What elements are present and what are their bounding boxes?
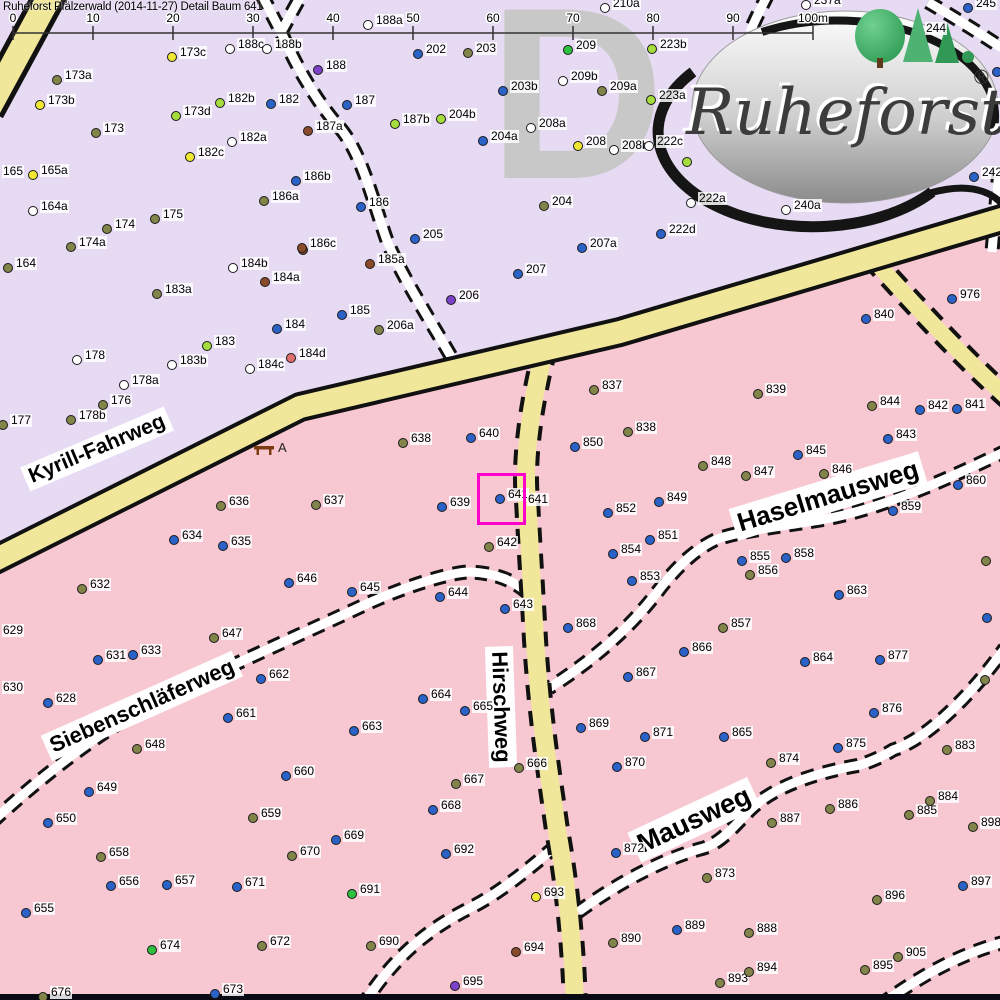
tree-label-667: 667 <box>463 773 485 786</box>
tree-marker-637 <box>311 500 321 510</box>
tree-label-691: 691 <box>359 883 381 896</box>
tree-marker-173 <box>91 128 101 138</box>
tree-marker-657 <box>162 880 172 890</box>
tree-label-173c: 173c <box>179 46 207 59</box>
tree-marker-655 <box>21 908 31 918</box>
tree-label-178b: 178b <box>78 409 107 422</box>
tree-label-187: 187 <box>354 94 376 107</box>
tree-label-188b: 188b <box>274 38 303 51</box>
tree-label-863: 863 <box>846 584 868 597</box>
tree-marker-632 <box>77 584 87 594</box>
tree-label-894: 894 <box>756 961 778 974</box>
tree-label-187b: 187b <box>402 113 431 126</box>
tree-label-223a: 223a <box>658 89 687 102</box>
tree-marker-860 <box>953 480 963 490</box>
tree-marker-633 <box>128 650 138 660</box>
tree-marker <box>981 556 991 566</box>
tree-label-223b: 223b <box>659 38 688 51</box>
tree-label-631: 631 <box>105 649 127 662</box>
tree-label-209b: 209b <box>570 70 599 83</box>
tree-label-206: 206 <box>458 289 480 302</box>
tree-label-646: 646 <box>296 572 318 585</box>
tree-label-864: 864 <box>812 651 834 664</box>
tree-marker-662 <box>256 674 266 684</box>
map-title: Ruheforst Pfälzerwald (2014-11-27) Detai… <box>3 1 263 13</box>
tree-label-629: 629 <box>2 624 24 637</box>
tree-marker-173c <box>167 52 177 62</box>
tree-label-853: 853 <box>639 570 661 583</box>
tree-marker-871 <box>640 732 650 742</box>
tree-marker-237a <box>801 0 811 10</box>
tree-marker-839 <box>753 389 763 399</box>
tree-label-186b: 186b <box>303 170 332 183</box>
tree-label-671: 671 <box>244 876 266 889</box>
tree-marker-664 <box>418 694 428 704</box>
tree-marker-850 <box>570 442 580 452</box>
tree-label-856: 856 <box>757 564 779 577</box>
tree-label-845: 845 <box>805 444 827 457</box>
tree-marker-874 <box>766 758 776 768</box>
tree-label-641: 641 <box>527 493 549 506</box>
tree-marker-890 <box>608 938 618 948</box>
tree-label-634: 634 <box>181 529 203 542</box>
tree-label-188: 188 <box>325 59 347 72</box>
tree-marker-182 <box>266 99 276 109</box>
tree-marker <box>682 157 692 167</box>
tree-label-186: 186 <box>368 196 390 209</box>
tree-marker-184c <box>245 364 255 374</box>
tree-marker-665 <box>460 706 470 716</box>
tree-label-244: 244 <box>925 22 947 35</box>
tree-label-885: 885 <box>916 804 938 817</box>
tree-label-657: 657 <box>174 874 196 887</box>
tree-marker-666 <box>514 763 524 773</box>
tree-label-849: 849 <box>666 491 688 504</box>
tree-label-242: 242 <box>981 166 1000 179</box>
tree-label-647: 647 <box>221 627 243 640</box>
tree-label-164a: 164a <box>40 200 69 213</box>
tree-label-176: 176 <box>110 394 132 407</box>
tree-marker-645 <box>347 587 357 597</box>
tree-label-841: 841 <box>964 398 986 411</box>
tree-marker-855 <box>737 556 747 566</box>
tree-marker-222c <box>644 141 654 151</box>
tree-label-173a: 173a <box>64 69 93 82</box>
tree-marker-184d <box>286 353 296 363</box>
tree-marker-843 <box>883 434 893 444</box>
tree-marker-628 <box>43 698 53 708</box>
tree-marker-209b <box>558 76 568 86</box>
tree-marker-848 <box>698 461 708 471</box>
tree-label-868: 868 <box>575 617 597 630</box>
tree-label-663: 663 <box>361 720 383 733</box>
tree-label-847: 847 <box>753 465 775 478</box>
tree-label-645: 645 <box>359 581 381 594</box>
tree-marker-847 <box>741 471 751 481</box>
tree-label-848: 848 <box>710 455 732 468</box>
tree-marker-851 <box>645 535 655 545</box>
tree-label-174a: 174a <box>78 236 107 249</box>
tree-marker-176 <box>98 400 108 410</box>
tree-marker-208 <box>573 141 583 151</box>
tree-label-870: 870 <box>624 756 646 769</box>
tree-marker-837 <box>589 385 599 395</box>
tree-label-656: 656 <box>118 875 140 888</box>
tree-marker-646 <box>284 578 294 588</box>
tree-marker-896 <box>872 895 882 905</box>
tree-marker-185a <box>365 259 375 269</box>
tree-label-184d: 184d <box>298 347 327 360</box>
tree-label-642: 642 <box>496 536 518 549</box>
tree-marker-695 <box>450 981 460 991</box>
tree-marker-209a <box>597 86 607 96</box>
tree-marker-184 <box>272 324 282 334</box>
tree-label-637: 637 <box>323 494 345 507</box>
tree-marker-642 <box>484 542 494 552</box>
tree-label-872: 872 <box>623 842 645 855</box>
tree-marker-186 <box>356 202 366 212</box>
tree-marker-897 <box>958 881 968 891</box>
tree-marker-656 <box>106 881 116 891</box>
tree-marker-658 <box>96 852 106 862</box>
tree-label-183a: 183a <box>164 283 193 296</box>
tree-label-237a: 237a <box>813 0 842 7</box>
tree-marker-877 <box>875 655 885 665</box>
tree-marker-885 <box>904 810 914 820</box>
tree-label-185a: 185a <box>377 253 406 266</box>
tree-marker-242 <box>969 172 979 182</box>
tree-marker-245 <box>963 3 973 13</box>
tree-label-889: 889 <box>684 919 706 932</box>
tree-label-650: 650 <box>55 812 77 825</box>
tree-marker-204a <box>478 136 488 146</box>
tree-marker-859 <box>888 506 898 516</box>
tree-marker-186c <box>297 243 307 253</box>
tree-label-857: 857 <box>730 617 752 630</box>
tree-marker-634 <box>169 535 179 545</box>
tree-label-184c: 184c <box>257 358 285 371</box>
tree-label-205: 205 <box>422 228 444 241</box>
tree-label-173: 173 <box>103 122 125 135</box>
tree-marker-858 <box>781 553 791 563</box>
tree-label-186a: 186a <box>271 190 300 203</box>
tree-label-865: 865 <box>731 726 753 739</box>
tree-marker-659 <box>248 813 258 823</box>
tree-marker-639 <box>437 502 447 512</box>
tree-label-182b: 182b <box>227 92 256 105</box>
tree-marker-184a <box>260 277 270 287</box>
tree-label-693: 693 <box>543 886 565 899</box>
selected-tree-box <box>477 473 526 525</box>
tree-marker-206a <box>374 325 384 335</box>
tree-marker-182a <box>227 137 237 147</box>
tree-label-209a: 209a <box>609 80 638 93</box>
tree-marker-223b <box>647 44 657 54</box>
tree-marker-208a <box>526 123 536 133</box>
tree-label-668: 668 <box>440 799 462 812</box>
tree-label-840: 840 <box>873 308 895 321</box>
tree-label-202: 202 <box>425 43 447 56</box>
tree-marker-863 <box>834 590 844 600</box>
tree-marker-674 <box>147 945 157 955</box>
tree-marker-631 <box>93 655 103 665</box>
tree-marker-207 <box>513 269 523 279</box>
tree-label-649: 649 <box>96 781 118 794</box>
tree-label-854: 854 <box>620 543 642 556</box>
tree-label-665: 665 <box>472 700 494 713</box>
tree-label-639: 639 <box>449 496 471 509</box>
tree-marker-186b <box>291 176 301 186</box>
tree-label-874: 874 <box>778 752 800 765</box>
tree-label-875: 875 <box>845 737 867 750</box>
tree-label-890: 890 <box>620 932 642 945</box>
tree-label-670: 670 <box>299 845 321 858</box>
tree-marker-165a <box>28 170 38 180</box>
tree-label-867: 867 <box>635 666 657 679</box>
tree-label-240a: 240a <box>793 199 822 212</box>
tree-marker-886 <box>825 804 835 814</box>
tree-marker-667 <box>451 779 461 789</box>
tree-label-896: 896 <box>884 889 906 902</box>
tree-marker-852 <box>603 508 613 518</box>
tree-label-851: 851 <box>657 529 679 542</box>
tree-marker-854 <box>608 549 618 559</box>
tree-label-692: 692 <box>453 843 475 856</box>
tree-label-842: 842 <box>927 399 949 412</box>
tree-marker-203 <box>463 48 473 58</box>
tree-label-207a: 207a <box>589 237 618 250</box>
tree-marker <box>982 613 992 623</box>
tree-label-174: 174 <box>114 218 136 231</box>
tree-marker-187b <box>390 119 400 129</box>
tree-label-871: 871 <box>652 726 674 739</box>
tree-label-664: 664 <box>430 688 452 701</box>
tree-label-648: 648 <box>144 738 166 751</box>
tree-marker-209 <box>563 45 573 55</box>
tree-label-640: 640 <box>478 427 500 440</box>
tree-marker-867 <box>623 672 633 682</box>
tree-marker-175 <box>150 214 160 224</box>
tree-label-204a: 204a <box>490 130 519 143</box>
tree-marker-868 <box>563 623 573 633</box>
tree-marker-671 <box>232 882 242 892</box>
tree-label-876: 876 <box>881 702 903 715</box>
tree-label-173d: 173d <box>183 105 212 118</box>
tree-marker-893 <box>715 978 725 988</box>
tree-label-633: 633 <box>140 644 162 657</box>
tree-marker-183a <box>152 289 162 299</box>
tree-marker-693 <box>531 892 541 902</box>
tree-label-662: 662 <box>268 668 290 681</box>
tree-label-183: 183 <box>214 335 236 348</box>
tree-marker-668 <box>428 805 438 815</box>
tree-label-632: 632 <box>89 578 111 591</box>
tree-marker-636 <box>216 501 226 511</box>
tree-label-897: 897 <box>970 875 992 888</box>
tree-marker-663 <box>349 726 359 736</box>
tree-marker-841 <box>952 404 962 414</box>
tree-label-644: 644 <box>447 586 469 599</box>
tree-marker-164a <box>28 206 38 216</box>
tree-marker-894 <box>744 967 754 977</box>
tree-label-222c: 222c <box>656 135 684 148</box>
tree-marker-888 <box>744 928 754 938</box>
tree-marker-188b <box>262 44 272 54</box>
tree-marker <box>992 67 1000 77</box>
tree-label-188a: 188a <box>375 14 404 27</box>
tree-label-164: 164 <box>15 257 37 270</box>
tree-label-888: 888 <box>756 922 778 935</box>
tree-marker-887 <box>767 818 777 828</box>
tree-marker-178b <box>66 415 76 425</box>
tree-marker-895 <box>860 965 870 975</box>
tree-marker-865 <box>719 732 729 742</box>
tree-label-630: 630 <box>2 681 24 694</box>
tree-label-852: 852 <box>615 502 637 515</box>
tree-label-883: 883 <box>954 739 976 752</box>
tree-label-844: 844 <box>879 395 901 408</box>
tree-label-182a: 182a <box>239 131 268 144</box>
tree-label-635: 635 <box>230 535 252 548</box>
tree-marker-838 <box>623 427 633 437</box>
tree-marker-649 <box>84 787 94 797</box>
tree-marker-173a <box>52 75 62 85</box>
tree-label-843: 843 <box>895 428 917 441</box>
tree-marker-670 <box>287 851 297 861</box>
tree-label-182c: 182c <box>197 146 225 159</box>
tree-label-898: 898 <box>980 816 1000 829</box>
tree-marker-883 <box>942 745 952 755</box>
tree-marker-691 <box>347 889 357 899</box>
tree-marker-676 <box>38 992 48 1000</box>
tree-label-184: 184 <box>284 318 306 331</box>
tree-marker-188a <box>363 20 373 30</box>
tree-label-188c: 188c <box>237 38 265 51</box>
tree-label-866: 866 <box>691 641 713 654</box>
tree-label-846: 846 <box>831 463 853 476</box>
tree-marker-188c <box>225 44 235 54</box>
tree-label-884: 884 <box>937 790 959 803</box>
tree-label-185: 185 <box>349 304 371 317</box>
tree-marker-650 <box>43 818 53 828</box>
tree-marker-842 <box>915 405 925 415</box>
tree-label-690: 690 <box>378 935 400 948</box>
tree-label-206a: 206a <box>386 319 415 332</box>
tree-label-210a: 210a <box>612 0 641 10</box>
tree-marker-884 <box>925 796 935 806</box>
tree-label-887: 887 <box>779 812 801 825</box>
tree-label-839: 839 <box>765 383 787 396</box>
tree-label-659: 659 <box>260 807 282 820</box>
tree-marker-185 <box>337 310 347 320</box>
tree-marker-164 <box>3 263 13 273</box>
tree-marker-173d <box>171 111 181 121</box>
tree-marker-669 <box>331 835 341 845</box>
tree-marker-188 <box>313 65 323 75</box>
tree-label-628: 628 <box>55 692 77 705</box>
tree-label-660: 660 <box>293 765 315 778</box>
tree-label-666: 666 <box>526 757 548 770</box>
tree-marker-174a <box>66 242 76 252</box>
tree-label-207: 207 <box>525 263 547 276</box>
tree-marker-661 <box>223 713 233 723</box>
tree-marker-647 <box>209 633 219 643</box>
tree-label-860: 860 <box>965 474 987 487</box>
tree-marker-976 <box>947 294 957 304</box>
tree-label-203b: 203b <box>510 80 539 93</box>
tree-label-873: 873 <box>714 867 736 880</box>
tree-marker-183 <box>202 341 212 351</box>
tree-label-855: 855 <box>749 550 771 563</box>
tree-label-838: 838 <box>635 421 657 434</box>
tree-label-850: 850 <box>582 436 604 449</box>
tree-marker-648 <box>132 744 142 754</box>
tree-marker-206 <box>446 295 456 305</box>
tree-marker-644 <box>435 592 445 602</box>
tree-label-184a: 184a <box>272 271 301 284</box>
tree-label-204b: 204b <box>448 108 477 121</box>
tree-marker-202 <box>413 49 423 59</box>
tree-label-245: 245 <box>975 0 997 10</box>
tree-marker-184b <box>228 263 238 273</box>
tree-label-209: 209 <box>575 39 597 52</box>
tree-label-222d: 222d <box>668 223 697 236</box>
tree-label-186c: 186c <box>309 237 337 250</box>
tree-marker-869 <box>576 723 586 733</box>
tree-label-173b: 173b <box>47 94 76 107</box>
tree-marker-673 <box>210 989 220 999</box>
tree-marker-849 <box>654 497 664 507</box>
tree-marker-875 <box>833 743 843 753</box>
tree-label-858: 858 <box>793 547 815 560</box>
tree-marker-210a <box>600 3 610 13</box>
tree-label-184b: 184b <box>240 257 269 270</box>
tree-label-643: 643 <box>512 598 534 611</box>
tree-label-673: 673 <box>222 983 244 996</box>
tree-label-178: 178 <box>84 349 106 362</box>
tree-marker-222a <box>686 198 696 208</box>
tree-marker-240a <box>781 205 791 215</box>
map-canvas: D <box>0 0 1000 1000</box>
tree-marker-635 <box>218 541 228 551</box>
tree-label-182: 182 <box>278 93 300 106</box>
tree-marker-866 <box>679 647 689 657</box>
tree-marker-643 <box>500 604 510 614</box>
tree-label-859: 859 <box>900 500 922 513</box>
tree-marker-638 <box>398 438 408 448</box>
tree-marker-694 <box>511 947 521 957</box>
tree-marker-889 <box>672 925 682 935</box>
tree-marker-844 <box>867 401 877 411</box>
tree-label-695: 695 <box>462 975 484 988</box>
tree-label-661: 661 <box>235 707 257 720</box>
tree-marker <box>980 675 990 685</box>
tree-marker-690 <box>366 941 376 951</box>
tree-marker-873 <box>702 873 712 883</box>
tree-label-178a: 178a <box>131 374 160 387</box>
tree-marker-905 <box>893 952 903 962</box>
tree-marker-672 <box>257 941 267 951</box>
tree-marker-187a <box>303 126 313 136</box>
tree-marker-840 <box>861 314 871 324</box>
tree-label-895: 895 <box>872 959 894 972</box>
tree-marker-177 <box>0 420 8 430</box>
tree-label-222a: 222a <box>698 192 727 205</box>
tree-marker-846 <box>819 469 829 479</box>
tree-label-655: 655 <box>33 902 55 915</box>
tree-label-165a: 165a <box>40 164 69 177</box>
tree-label-177: 177 <box>10 414 32 427</box>
